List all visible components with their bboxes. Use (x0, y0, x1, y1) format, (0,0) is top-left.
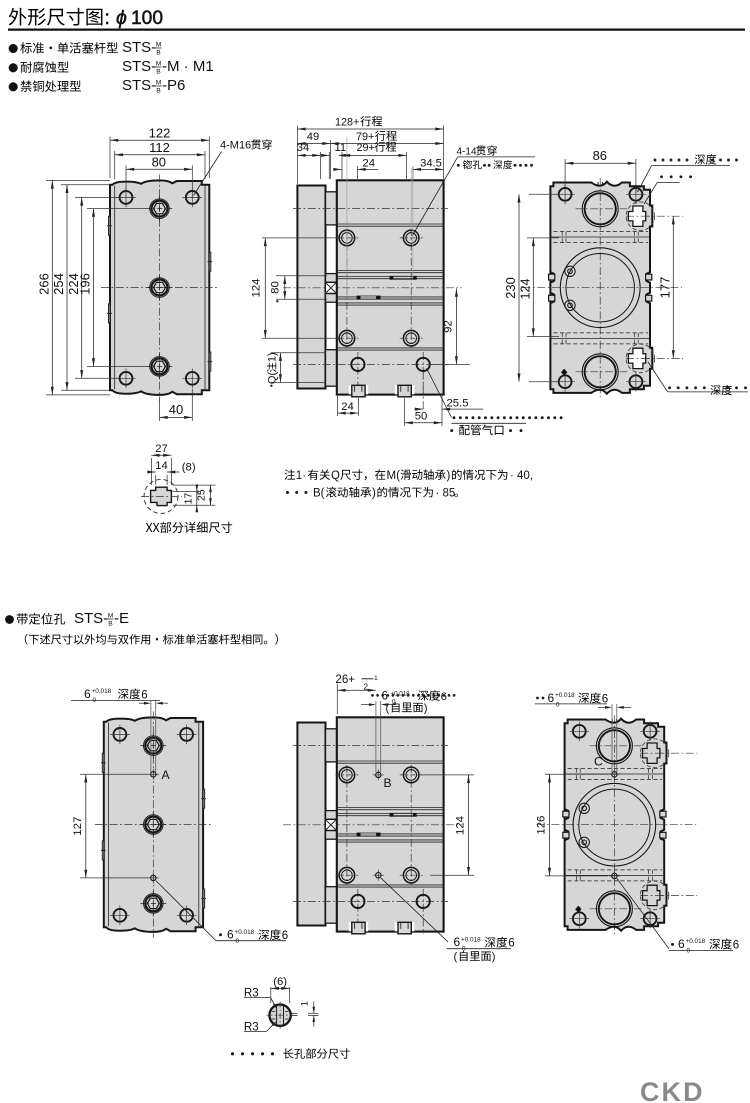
svg-text:+0.018: +0.018 (235, 929, 255, 936)
svg-text:27: 27 (155, 443, 168, 455)
svg-text:34.5: 34.5 (420, 157, 442, 169)
svg-text:-E: -E (114, 610, 129, 627)
svg-text:230: 230 (503, 277, 518, 299)
svg-text:2: 2 (364, 683, 369, 692)
svg-text:+0.018: +0.018 (555, 692, 575, 699)
svg-text:Q: Q (331, 470, 340, 482)
svg-text:4-M16: 4-M16 (220, 140, 251, 152)
svg-text:STS-: STS- (122, 77, 156, 94)
svg-text:86: 86 (593, 148, 607, 163)
svg-text:127: 127 (72, 817, 84, 836)
svg-text:): ) (424, 703, 428, 715)
svg-text:B: B (108, 621, 113, 628)
svg-text:+0.018: +0.018 (92, 688, 112, 695)
svg-text:266: 266 (36, 273, 51, 295)
svg-text:92: 92 (443, 320, 455, 333)
svg-text:6: 6 (508, 937, 514, 950)
svg-text:-P6: -P6 (162, 77, 185, 94)
svg-text:254: 254 (51, 273, 66, 295)
svg-text:6: 6 (602, 692, 608, 705)
svg-text:24: 24 (341, 401, 354, 413)
svg-text:6: 6 (733, 938, 739, 951)
svg-text:1·: 1· (296, 470, 306, 482)
svg-text:25.5: 25.5 (447, 398, 469, 410)
svg-text:STS-: STS- (122, 39, 156, 56)
svg-text:M(: M( (387, 470, 401, 482)
svg-text:C: C (594, 755, 603, 769)
svg-text:122: 122 (149, 125, 171, 140)
svg-text:4-14: 4-14 (457, 147, 477, 158)
svg-text:STS-: STS- (122, 58, 156, 75)
svg-text:B: B (384, 776, 392, 790)
svg-text:(: ( (454, 951, 458, 963)
svg-text:80: 80 (270, 281, 282, 294)
svg-text:6: 6 (227, 928, 234, 942)
svg-text:M: M (108, 613, 114, 620)
svg-text:126: 126 (536, 816, 548, 835)
svg-text:6: 6 (141, 688, 147, 701)
svg-text:B(: B( (313, 488, 325, 500)
svg-text:B: B (156, 50, 161, 57)
svg-text:124: 124 (251, 278, 263, 297)
svg-text:M: M (156, 80, 162, 87)
svg-text:-M · M1: -M · M1 (162, 58, 214, 75)
svg-text:29+: 29+ (357, 142, 375, 154)
svg-text:34: 34 (297, 142, 309, 154)
svg-text:50: 50 (415, 411, 428, 423)
svg-text:(6): (6) (273, 976, 287, 988)
svg-text:6: 6 (84, 687, 91, 701)
svg-text:112: 112 (149, 140, 170, 155)
svg-text:6: 6 (454, 935, 461, 949)
svg-text:STS-: STS- (74, 610, 108, 627)
svg-text:14: 14 (155, 460, 168, 472)
svg-text:17: 17 (182, 493, 194, 505)
svg-text:124: 124 (518, 278, 532, 299)
svg-text:0: 0 (462, 946, 466, 953)
svg-text:40: 40 (169, 402, 183, 417)
svg-text:11: 11 (335, 142, 347, 154)
svg-text:· 85: · 85 (436, 488, 456, 500)
svg-text:CKD: CKD (640, 1077, 705, 1103)
svg-text:): ) (447, 470, 451, 482)
svg-text:26+: 26+ (335, 673, 355, 686)
svg-text:B: B (156, 88, 161, 95)
svg-text:Q(: Q( (267, 372, 279, 385)
svg-text:0: 0 (556, 701, 560, 708)
svg-text:B: B (156, 69, 161, 76)
svg-text:+0.018: +0.018 (461, 936, 481, 943)
svg-text:80: 80 (152, 154, 166, 169)
svg-text:A: A (162, 768, 171, 782)
svg-text:0: 0 (236, 938, 240, 945)
svg-text:177: 177 (657, 277, 672, 299)
svg-text:1): 1) (267, 352, 279, 362)
svg-text:1: 1 (374, 675, 378, 682)
svg-text:(: ( (386, 703, 390, 715)
svg-text:0: 0 (687, 947, 691, 954)
svg-text:6: 6 (548, 691, 555, 705)
svg-text:): ) (492, 951, 496, 963)
svg-text:100: 100 (131, 8, 163, 29)
svg-text:196: 196 (78, 273, 93, 295)
svg-text:ϕ: ϕ (116, 7, 127, 29)
svg-text:124: 124 (455, 816, 467, 835)
svg-text:1: 1 (300, 1001, 311, 1006)
svg-text:6: 6 (678, 937, 685, 951)
svg-text:128+: 128+ (335, 116, 359, 128)
svg-text:6: 6 (441, 691, 447, 703)
svg-text:): ) (372, 488, 376, 500)
svg-text:6: 6 (282, 929, 288, 942)
svg-text:24: 24 (363, 157, 375, 169)
svg-text:M: M (156, 42, 162, 49)
svg-text:M: M (156, 61, 162, 68)
svg-text:(8): (8) (182, 461, 196, 473)
svg-text:25: 25 (195, 489, 207, 501)
svg-text:+0.018: +0.018 (686, 938, 706, 945)
svg-text::: : (105, 8, 110, 29)
svg-text:· 40,: · 40, (510, 470, 533, 482)
